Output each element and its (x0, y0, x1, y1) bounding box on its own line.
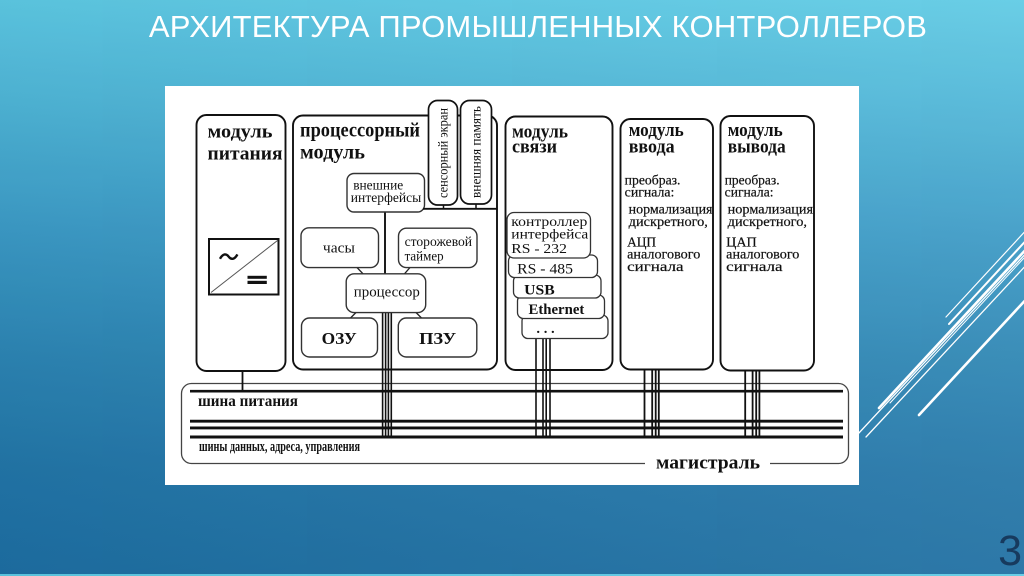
svg-text:сторожевой: сторожевой (405, 235, 473, 250)
svg-text:модуль: модуль (208, 122, 273, 143)
svg-text:шины данных, адреса, управлен: шины данных, адреса, управления (199, 439, 360, 455)
svg-text:RS - 232: RS - 232 (511, 242, 567, 257)
svg-text:сигнала:: сигнала: (625, 184, 675, 199)
svg-text:сигнала: сигнала (726, 259, 782, 274)
svg-text:процессор: процессор (354, 285, 420, 301)
svg-text:связи: связи (512, 136, 557, 157)
svg-text:RS - 485: RS - 485 (517, 262, 573, 278)
svg-text:вывода: вывода (728, 137, 786, 158)
svg-text:внешняя память: внешняя память (469, 106, 484, 198)
svg-text:ОЗУ: ОЗУ (322, 329, 358, 348)
svg-text:шина питания: шина питания (198, 393, 298, 410)
svg-text:магистраль: магистраль (656, 453, 760, 474)
svg-text:ввода: ввода (629, 137, 675, 158)
svg-text:процессорный: процессорный (300, 120, 420, 142)
svg-text:таймер: таймер (405, 250, 444, 265)
svg-text:часы: часы (323, 241, 355, 257)
svg-text:сенсорный экран: сенсорный экран (436, 108, 451, 198)
svg-text:сигнала:: сигнала: (725, 184, 774, 199)
svg-text:модуль: модуль (300, 142, 365, 164)
svg-text:Ethernet: Ethernet (529, 302, 585, 318)
svg-text:USB: USB (524, 283, 555, 299)
svg-text:дискретного,: дискретного, (629, 214, 708, 229)
svg-text:сигнала: сигнала (627, 259, 684, 274)
svg-text:питания: питания (208, 144, 283, 165)
svg-text:ПЗУ: ПЗУ (419, 329, 457, 348)
svg-text:. . .: . . . (536, 322, 554, 337)
svg-text:интерфейсы: интерфейсы (351, 191, 422, 206)
svg-text:интерфейса: интерфейса (511, 228, 589, 243)
svg-text:дискретного,: дискретного, (728, 214, 807, 229)
